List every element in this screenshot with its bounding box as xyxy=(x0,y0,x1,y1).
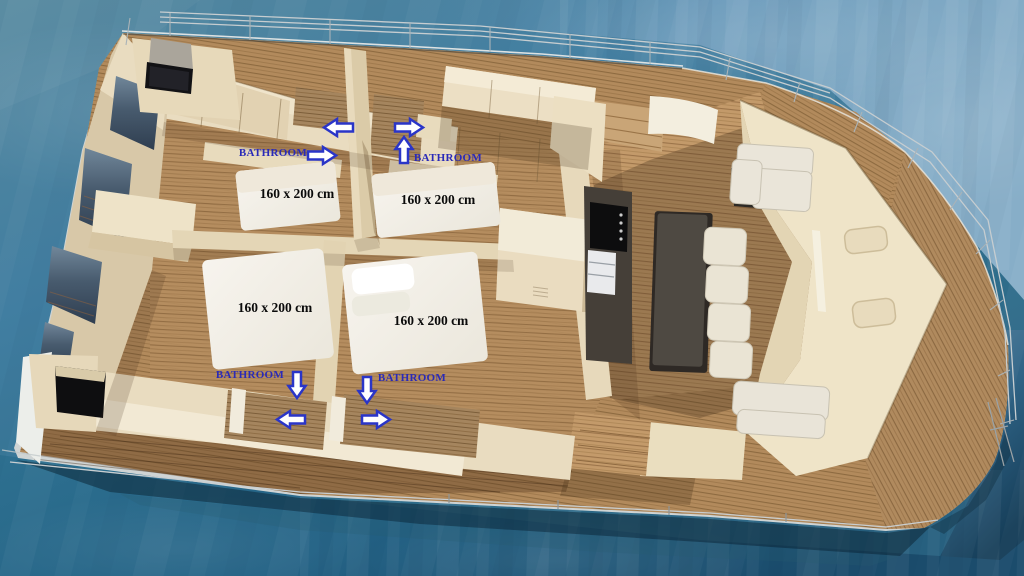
svg-text:160 x 200 cm: 160 x 200 cm xyxy=(401,192,476,207)
svg-text:160 x 200 cm: 160 x 200 cm xyxy=(260,186,335,201)
svg-text:160 x 200 cm: 160 x 200 cm xyxy=(394,313,469,328)
svg-text:BATHROOM: BATHROOM xyxy=(239,147,308,159)
svg-text:160 x 200 cm: 160 x 200 cm xyxy=(238,300,313,315)
svg-text:BATHROOM: BATHROOM xyxy=(414,152,483,164)
svg-text:BATHROOM: BATHROOM xyxy=(378,372,447,384)
svg-text:BATHROOM: BATHROOM xyxy=(216,369,285,381)
